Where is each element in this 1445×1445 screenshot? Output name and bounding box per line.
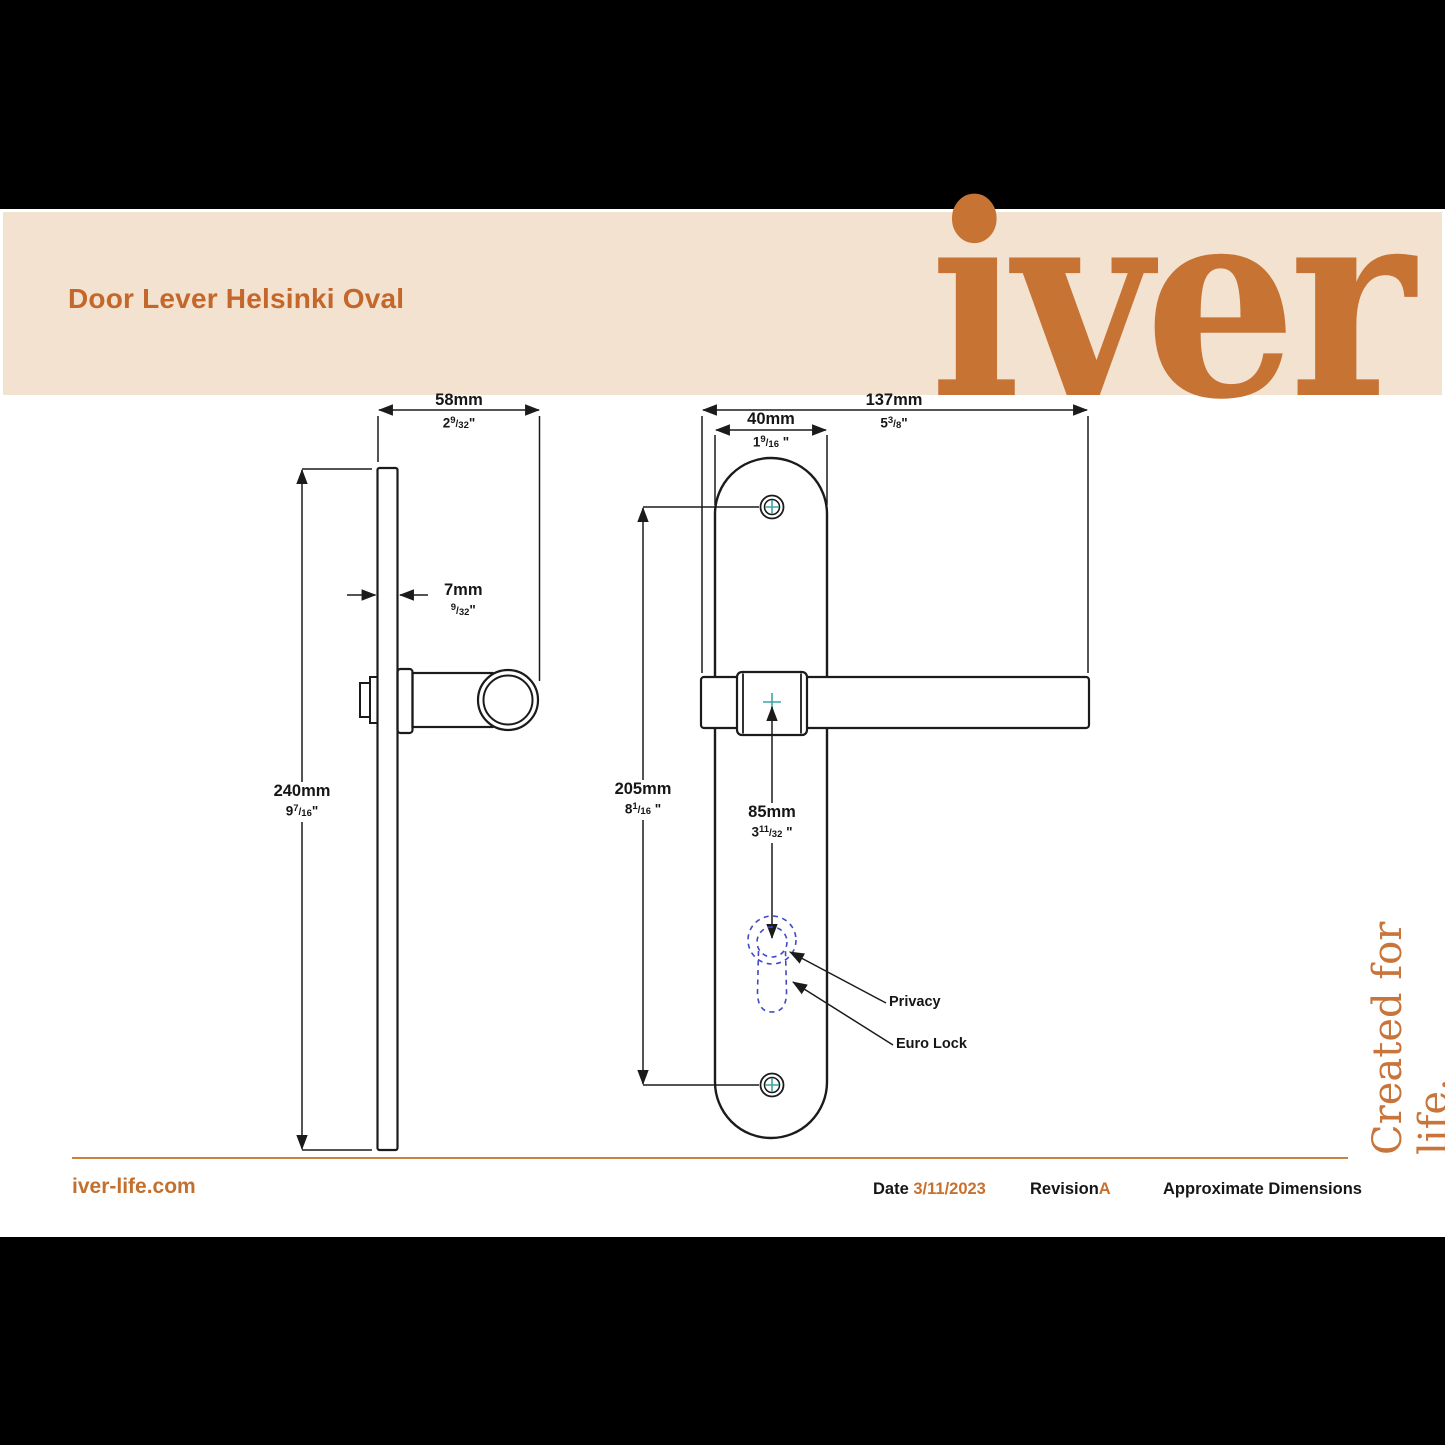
date-label: Date xyxy=(873,1180,909,1198)
dim-85mm-imperial: 311/32 " xyxy=(748,823,796,841)
dim-205mm-metric: 205mm xyxy=(615,782,672,797)
dimensions-note: Approximate Dimensions xyxy=(1163,1180,1362,1199)
dim-58mm-imperial: 29/32" xyxy=(435,414,483,432)
dim-240mm-metric: 240mm xyxy=(274,784,331,799)
dim-240mm: 240mm 97/16" xyxy=(268,782,337,822)
footer-divider xyxy=(72,1157,1348,1159)
privacy-label: Privacy xyxy=(889,994,941,1010)
dim-205mm: 205mm 81/16 " xyxy=(609,780,678,820)
side-view-drawing xyxy=(302,410,540,1150)
euro-cylinder-stem xyxy=(758,951,787,1012)
technical-drawing xyxy=(0,0,1445,1445)
dim-7mm-imperial: 9/32" xyxy=(444,601,483,619)
dim-85mm-metric: 85mm xyxy=(748,805,796,820)
side-spindle-inner xyxy=(370,677,378,723)
dim-40mm-metric: 40mm xyxy=(747,412,795,427)
revision-value: A xyxy=(1099,1180,1111,1198)
revision-field: RevisionA xyxy=(1030,1180,1111,1199)
tagline: Created for life. xyxy=(1365,855,1415,1155)
dim-205mm-imperial: 81/16 " xyxy=(615,800,672,818)
dim-137mm: 137mm 53/8" xyxy=(866,393,923,432)
dim-58mm: 58mm 29/32" xyxy=(435,393,483,432)
dim-58-lines xyxy=(378,410,540,681)
dim-240mm-imperial: 97/16" xyxy=(274,802,331,820)
dim-58mm-metric: 58mm xyxy=(435,393,483,408)
euro-lock-label: Euro Lock xyxy=(896,1036,967,1052)
dim-7mm-metric: 7mm xyxy=(444,583,483,598)
side-backplate xyxy=(378,468,398,1150)
dim-40mm: 40mm 19/16 " xyxy=(747,412,795,451)
dim-7mm: 7mm 9/32" xyxy=(444,583,483,619)
website-link[interactable]: iver-life.com xyxy=(72,1175,196,1199)
front-view-drawing xyxy=(643,410,1089,1138)
spec-sheet: Door Lever Helsinki Oval iver xyxy=(0,0,1445,1445)
date-value: 3/11/2023 xyxy=(913,1180,986,1198)
euro-lock-leader xyxy=(793,982,893,1045)
date-field: Date 3/11/2023 xyxy=(873,1180,986,1199)
side-grip-outer xyxy=(478,670,538,730)
privacy-leader xyxy=(790,952,886,1003)
side-rose xyxy=(398,669,413,733)
side-spindle-outer xyxy=(360,683,370,717)
dim-40mm-imperial: 19/16 " xyxy=(747,433,795,451)
dim-85mm: 85mm 311/32 " xyxy=(742,803,802,843)
front-backplate xyxy=(715,458,827,1138)
revision-label: Revision xyxy=(1030,1180,1099,1198)
leader-lines xyxy=(790,952,893,1045)
dim-137mm-metric: 137mm xyxy=(866,393,923,408)
dim-137mm-imperial: 53/8" xyxy=(866,414,923,432)
